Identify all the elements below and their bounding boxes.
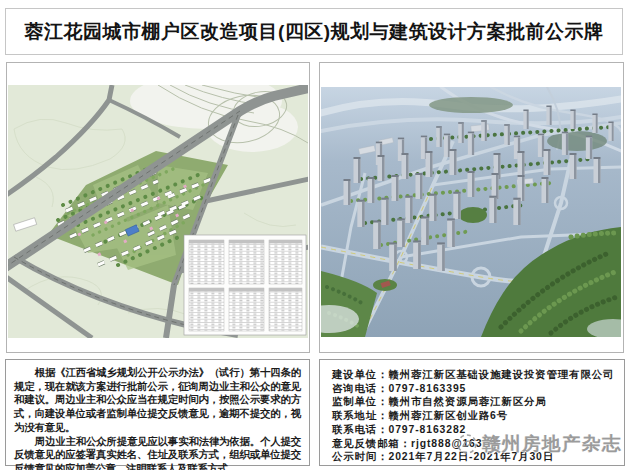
watermark-text: 赣州房地产杂志 (482, 431, 622, 456)
site-plan-panel (6, 62, 310, 353)
page-title: 蓉江花园城市棚户区改造项目(四区)规划与建筑设计方案批前公示牌 (24, 19, 603, 45)
notice-board: 蓉江花园城市棚户区改造项目(四区)规划与建筑设计方案批前公示牌 (0, 0, 629, 470)
notice-text-box: 根据《江西省城乡规划公开公示办法》（试行）第十四条的规定，现在就该方案进行批前公… (5, 359, 310, 466)
title-box: 蓉江花园城市棚户区改造项目(四区)规划与建筑设计方案批前公示牌 (5, 8, 623, 55)
contact-line-supervising-unit: 监制单位：赣州市自然资源局蓉江新区分局 (332, 395, 620, 409)
notice-paragraph-1: 根据《江西省城乡规划公开公示办法》（试行）第十四条的规定，现在就该方案进行批前公… (14, 366, 301, 435)
contact-line-construction-unit: 建设单位：赣州蓉江新区基础设施建设投资管理有限公司 (332, 368, 620, 382)
watermark: 赣州房地产杂志 (455, 431, 622, 456)
site-plan-image (8, 85, 308, 338)
aerial-rendering-panel (319, 62, 624, 353)
aerial-rendering-image (321, 87, 621, 337)
indicator-tables (184, 235, 306, 335)
contact-line-consult-phone: 咨询电话：0797-8163395 (332, 382, 620, 396)
contact-line-address: 联系地址：赣州蓉江新区创业路6号 (332, 409, 620, 423)
notice-paragraph-2: 周边业主和公众所提意见应以事实和法律为依据。个人提交反馈意见的应签署真实姓名、住… (14, 435, 301, 470)
magazine-logo-icon (455, 432, 479, 456)
